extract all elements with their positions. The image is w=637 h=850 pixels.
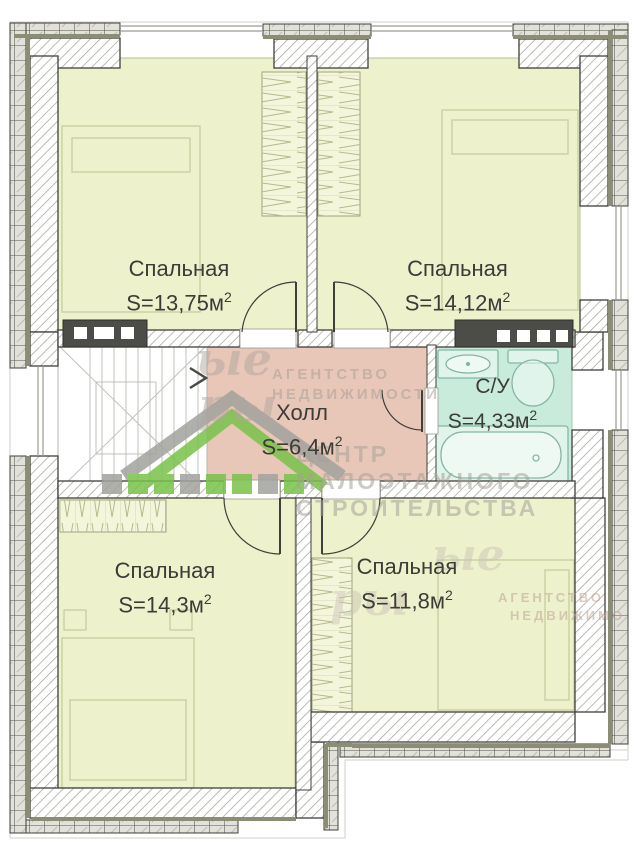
floor-plan: ые ры АГЕНТСТВО НЕДВИЖИМОСТИ ЦЕНТР МАЛОЭ… (0, 0, 637, 850)
window-top-left (120, 26, 263, 31)
window-right-bedroom (616, 206, 621, 300)
vent-block-right (455, 320, 573, 347)
bedroom-bottom-left-fill (58, 498, 295, 790)
window-stair-left (38, 366, 43, 456)
window-bathroom (616, 370, 621, 430)
floor-plan-drawing (0, 0, 637, 850)
sink (438, 350, 498, 378)
bathtub (434, 426, 568, 484)
window-top-right (371, 26, 513, 31)
